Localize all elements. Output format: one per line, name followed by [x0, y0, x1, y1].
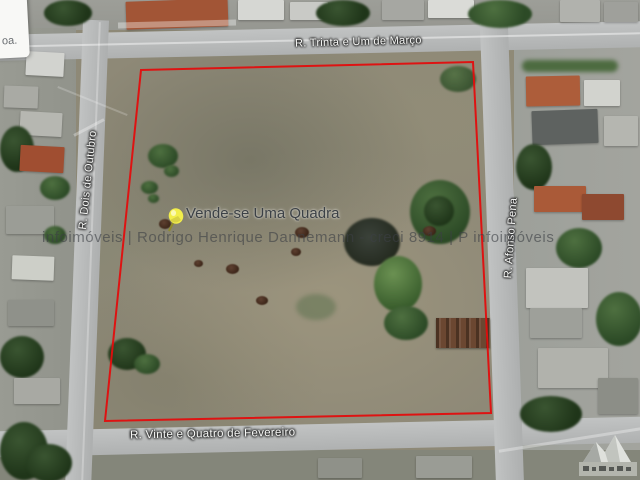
pushpin-icon[interactable] — [163, 206, 187, 239]
tree — [141, 181, 158, 194]
tree — [520, 396, 582, 432]
house-roof — [534, 186, 586, 212]
bush — [291, 248, 301, 256]
house-roof — [4, 85, 39, 108]
bush — [226, 264, 239, 274]
house-roof — [604, 2, 638, 22]
tree — [164, 165, 179, 177]
tree — [44, 0, 92, 26]
tree — [556, 228, 602, 268]
tree — [424, 196, 454, 226]
house-roof — [8, 300, 54, 326]
house-roof — [416, 456, 472, 478]
house-roof — [582, 194, 624, 220]
tree — [440, 66, 476, 92]
house-roof — [318, 458, 362, 478]
house-roof — [598, 378, 638, 414]
tree — [40, 176, 70, 200]
shed — [436, 318, 490, 348]
house-roof — [238, 0, 284, 20]
house-roof — [584, 80, 620, 106]
tree — [384, 306, 428, 340]
watermark-text: infoimóveis | Rodrigo Henrique Dannemann… — [42, 229, 554, 246]
corner-label-bubble: oa. — [0, 0, 30, 59]
parcel-label: Vende-se Uma Quadra — [186, 205, 339, 222]
tree — [134, 354, 160, 374]
tree — [0, 336, 44, 378]
corner-label-text: oa. — [2, 35, 18, 48]
tree — [374, 256, 422, 312]
tree — [148, 194, 159, 203]
pushpin-highlight — [171, 210, 176, 216]
house-roof — [526, 76, 581, 107]
grass-patch — [296, 294, 336, 320]
house-roof — [531, 109, 598, 145]
house-roof — [604, 116, 638, 146]
house-roof — [428, 0, 474, 18]
tree — [596, 292, 640, 346]
tree — [516, 144, 552, 190]
house-roof — [530, 308, 582, 338]
house-roof — [382, 0, 424, 20]
house-roof — [19, 145, 64, 173]
house-roof — [25, 51, 64, 77]
house-roof — [526, 268, 588, 308]
bush — [194, 260, 203, 267]
house-roof — [560, 0, 600, 22]
house-roof — [12, 255, 55, 280]
satellite-map-canvas[interactable]: R. Trinta e Um de Março R. Vinte e Quatr… — [0, 0, 640, 480]
hedge — [522, 60, 618, 72]
tree — [316, 0, 370, 26]
tree — [468, 0, 532, 28]
pushpin-head — [167, 206, 186, 225]
house-roof — [14, 378, 60, 404]
infoimoveis-logo — [577, 429, 639, 479]
tree — [26, 444, 72, 480]
bush — [256, 296, 268, 305]
